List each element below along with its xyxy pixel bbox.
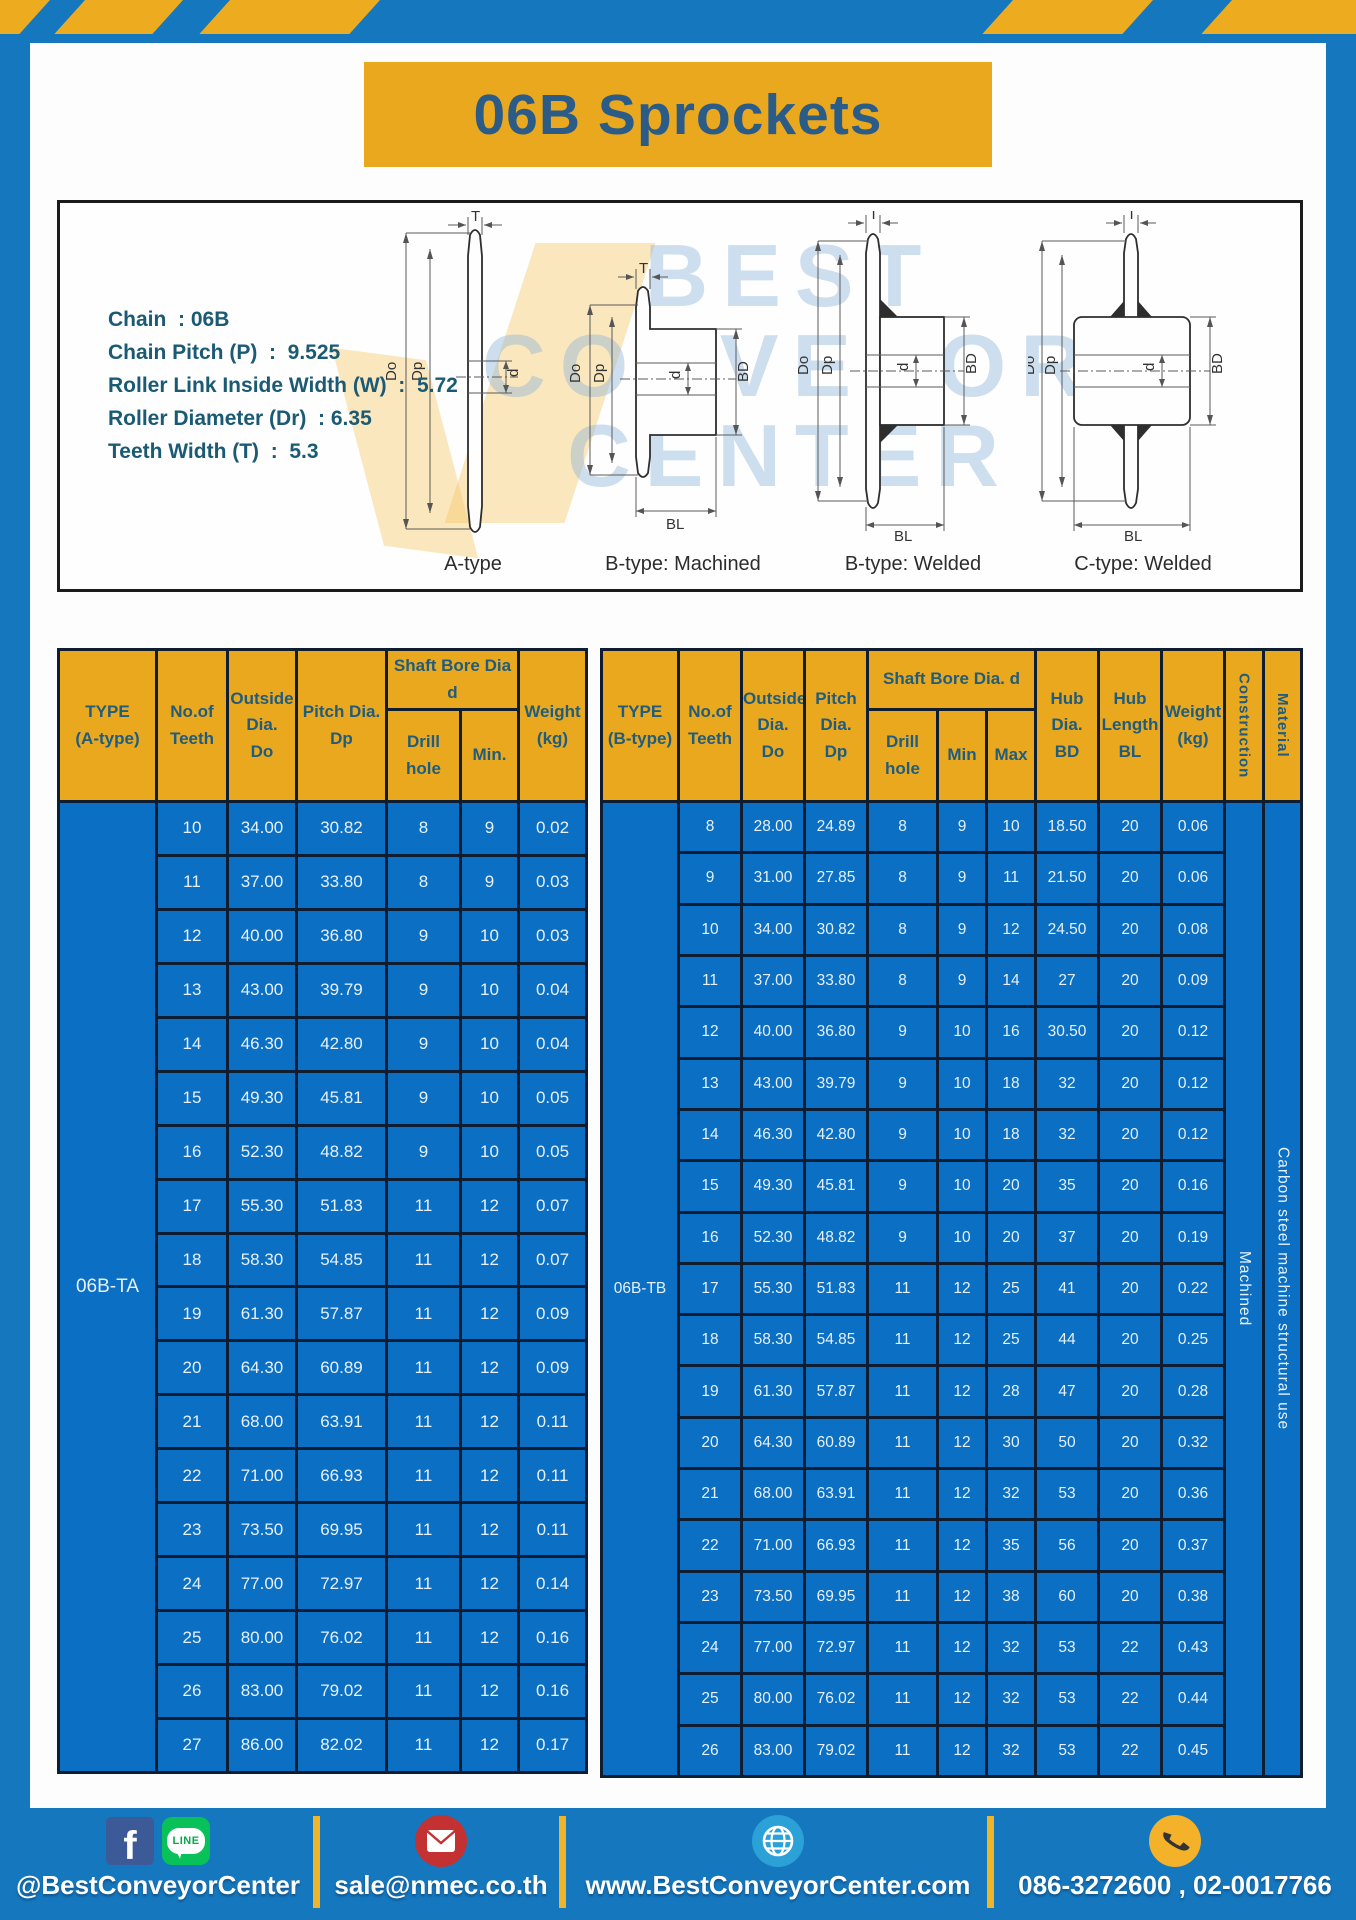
table-cell: 0.25	[1162, 1315, 1225, 1366]
svg-text:T: T	[471, 211, 480, 225]
table-cell: 53	[1036, 1725, 1099, 1776]
table-cell: 57.87	[805, 1366, 868, 1417]
table-cell: 0.16	[1162, 1161, 1225, 1212]
table-cell: 44	[1036, 1315, 1099, 1366]
table-row: 2064.3060.8911123050200.32	[602, 1417, 1302, 1468]
table-cell: 0.11	[519, 1503, 587, 1557]
table-cell: 12	[938, 1417, 987, 1468]
col-header-material: Material	[1264, 650, 1302, 802]
table-cell: 12	[461, 1233, 519, 1287]
table-cell: 64.30	[228, 1341, 297, 1395]
table-cell: 34.00	[742, 904, 805, 955]
table-cell: 0.06	[1162, 853, 1225, 904]
table-cell: 37.00	[742, 955, 805, 1006]
table-cell: 48.82	[297, 1125, 387, 1179]
table-cell: 0.09	[1162, 955, 1225, 1006]
table-cell: 25	[987, 1315, 1036, 1366]
svg-text:BD: BD	[735, 361, 752, 382]
table-cell: 20	[1099, 1571, 1162, 1622]
table-cell: 82.02	[297, 1718, 387, 1772]
phone-icon[interactable]	[1149, 1815, 1201, 1867]
spec-line: Roller Link Inside Width (W) : 5.72	[108, 369, 458, 402]
table-cell: 0.36	[1162, 1469, 1225, 1520]
col-header-weight: Weight (kg)	[519, 650, 587, 802]
table-cell: 19	[679, 1366, 742, 1417]
table-cell: 54.85	[805, 1315, 868, 1366]
table-cell: 55.30	[228, 1179, 297, 1233]
table-cell: 15	[679, 1161, 742, 1212]
svg-text:Do: Do	[568, 364, 584, 383]
table-cell: 10	[938, 1212, 987, 1263]
table-cell: 0.32	[1162, 1417, 1225, 1468]
table-cell: 14	[987, 955, 1036, 1006]
table-cell: 10	[461, 1017, 519, 1071]
table-b-container: TYPE (B-type) No.of Teeth Outside Dia. D…	[600, 648, 1300, 1778]
table-cell: 11	[387, 1718, 461, 1772]
table-cell: 30.82	[805, 904, 868, 955]
table-cell: 38	[987, 1571, 1036, 1622]
table-cell: 49.30	[742, 1161, 805, 1212]
table-cell: 0.12	[1162, 1058, 1225, 1109]
table-cell: 20	[1099, 1263, 1162, 1314]
table-cell: 22	[1099, 1674, 1162, 1725]
facebook-icon[interactable]: f	[106, 1817, 154, 1865]
svg-text:Dp: Dp	[591, 364, 608, 383]
table-row: 2373.5069.9511123860200.38	[602, 1571, 1302, 1622]
table-cell: 83.00	[228, 1665, 297, 1719]
phone-numbers[interactable]: 086-3272600 , 02-0017766	[1018, 1870, 1332, 1901]
table-cell: 0.43	[1162, 1623, 1225, 1674]
page-title: 06B Sprockets	[473, 82, 882, 148]
col-header-weight: Weight (kg)	[1162, 650, 1225, 802]
table-cell: 58.30	[742, 1315, 805, 1366]
table-cell: 8	[868, 802, 938, 853]
table-cell: 20	[1099, 1212, 1162, 1263]
table-cell: 14	[679, 1109, 742, 1160]
table-cell: 11	[868, 1366, 938, 1417]
table-cell: 10	[679, 904, 742, 955]
table-row: 2683.0079.0211123253220.45	[602, 1725, 1302, 1776]
table-cell: 26	[157, 1665, 228, 1719]
table-cell: 30.50	[1036, 1007, 1099, 1058]
table-cell: 17	[679, 1263, 742, 1314]
table-cell: 12	[461, 1611, 519, 1665]
top-decorative-band	[0, 0, 1356, 43]
table-cell: 68.00	[228, 1395, 297, 1449]
table-cell: 17	[157, 1179, 228, 1233]
table-cell: 61.30	[742, 1366, 805, 1417]
table-cell: 16	[157, 1125, 228, 1179]
table-cell: 21	[679, 1469, 742, 1520]
table-cell: 11	[679, 955, 742, 1006]
chain-specs: Chain : 06B Chain Pitch (P) : 9.525 Roll…	[108, 303, 458, 468]
table-cell: 39.79	[297, 963, 387, 1017]
table-cell: 20	[1099, 1520, 1162, 1571]
table-cell: 0.03	[519, 909, 587, 963]
table-cell: 0.07	[519, 1179, 587, 1233]
email-address[interactable]: sale@nmec.co.th	[334, 1870, 547, 1901]
svg-text:d: d	[895, 363, 912, 371]
table-cell: 12	[461, 1287, 519, 1341]
table-row: 2580.0076.0211123253220.44	[602, 1674, 1302, 1725]
table-cell: 11	[868, 1520, 938, 1571]
table-cell: 24	[157, 1557, 228, 1611]
diagram-b-type-welded: T Do Dp	[798, 211, 1028, 583]
table-cell: 20	[1099, 1315, 1162, 1366]
table-cell: 0.38	[1162, 1571, 1225, 1622]
table-cell: 0.05	[519, 1125, 587, 1179]
table-cell: 69.95	[297, 1503, 387, 1557]
type-label-cell: 06B-TB	[602, 802, 679, 1777]
table-row: 1549.3045.819102035200.16	[602, 1161, 1302, 1212]
col-header-hub-length: Hub Length BL	[1099, 650, 1162, 802]
table-cell: 27	[1036, 955, 1099, 1006]
table-cell: 20	[1099, 1007, 1162, 1058]
table-row: 2168.0063.9111123253200.36	[602, 1469, 1302, 1520]
footer-divider	[987, 1816, 994, 1908]
table-cell: 28.00	[742, 802, 805, 853]
table-cell: 32	[1036, 1058, 1099, 1109]
table-cell: 26	[679, 1725, 742, 1776]
table-cell: 10	[157, 802, 228, 856]
table-cell: 60.89	[297, 1341, 387, 1395]
table-cell: 11	[387, 1665, 461, 1719]
table-cell: 64.30	[742, 1417, 805, 1468]
table-cell: 19	[157, 1287, 228, 1341]
footer-divider	[559, 1816, 566, 1908]
globe-glyph	[760, 1823, 796, 1859]
table-cell: 27.85	[805, 853, 868, 904]
table-cell: 12	[461, 1503, 519, 1557]
social-handle[interactable]: @BestConveyorCenter	[16, 1870, 300, 1901]
table-cell: 51.83	[297, 1179, 387, 1233]
table-cell: 54.85	[297, 1233, 387, 1287]
table-cell: 12	[938, 1366, 987, 1417]
table-cell: 33.80	[805, 955, 868, 1006]
col-header-type: TYPE (A-type)	[59, 650, 157, 802]
table-cell: 10	[987, 802, 1036, 853]
table-cell: 9	[938, 955, 987, 1006]
table-cell: 83.00	[742, 1725, 805, 1776]
table-cell: 35	[987, 1520, 1036, 1571]
table-cell: 76.02	[805, 1674, 868, 1725]
table-cell: 0.11	[519, 1449, 587, 1503]
table-cell: 0.09	[519, 1287, 587, 1341]
table-cell: 0.03	[519, 855, 587, 909]
table-cell: 25	[679, 1674, 742, 1725]
table-cell: 45.81	[805, 1161, 868, 1212]
table-row: 2477.0072.9711123253220.43	[602, 1623, 1302, 1674]
table-cell: 10	[938, 1058, 987, 1109]
table-cell: 13	[157, 963, 228, 1017]
table-cell: 9	[387, 1071, 461, 1125]
table-cell: 9	[679, 853, 742, 904]
table-row: 06B-TA1034.0030.82890.02	[59, 802, 587, 856]
table-cell: 45.81	[297, 1071, 387, 1125]
table-cell: 23	[157, 1503, 228, 1557]
table-cell: 9	[938, 802, 987, 853]
table-cell: 52.30	[228, 1125, 297, 1179]
page-body: 06B Sprockets BEST CONVEYOR CENTER Chain…	[30, 43, 1326, 1808]
table-cell: 20	[1099, 853, 1162, 904]
table-cell: 10	[461, 1071, 519, 1125]
table-cell: 12	[938, 1623, 987, 1674]
table-cell: 21	[157, 1395, 228, 1449]
table-cell: 18	[987, 1058, 1036, 1109]
line-bubble-tail	[173, 1849, 182, 1858]
col-header-outside-dia: Outside Dia. Do	[742, 650, 805, 802]
table-cell: 56	[1036, 1520, 1099, 1571]
table-cell: 71.00	[228, 1449, 297, 1503]
table-cell: 31.00	[742, 853, 805, 904]
table-cell: 9	[938, 904, 987, 955]
table-cell: 9	[461, 855, 519, 909]
svg-text:Dp: Dp	[1042, 356, 1059, 375]
table-cell: 12	[938, 1725, 987, 1776]
table-cell: 0.08	[1162, 904, 1225, 955]
table-row: 1240.0036.809101630.50200.12	[602, 1007, 1302, 1058]
table-cell: 43.00	[742, 1058, 805, 1109]
table-cell: 12	[461, 1341, 519, 1395]
diagram-panel: BEST CONVEYOR CENTER Chain : 06B Chain P…	[57, 200, 1303, 592]
table-cell: 63.91	[297, 1395, 387, 1449]
table-cell: 20	[987, 1161, 1036, 1212]
table-cell: 20	[1099, 1366, 1162, 1417]
table-cell: 9	[387, 963, 461, 1017]
table-cell: 0.12	[1162, 1109, 1225, 1160]
table-cell: 22	[1099, 1725, 1162, 1776]
table-cell: 10	[938, 1007, 987, 1058]
table-cell: 58.30	[228, 1233, 297, 1287]
table-cell: 79.02	[297, 1665, 387, 1719]
table-cell: 86.00	[228, 1718, 297, 1772]
title-banner: 06B Sprockets	[364, 62, 992, 167]
table-cell: 69.95	[805, 1571, 868, 1622]
table-cell: 71.00	[742, 1520, 805, 1571]
table-cell: 0.05	[519, 1071, 587, 1125]
table-cell: 22	[157, 1449, 228, 1503]
table-cell: 60.89	[805, 1417, 868, 1468]
table-cell: 42.80	[805, 1109, 868, 1160]
table-cell: 11	[868, 1725, 938, 1776]
table-cell: 0.16	[519, 1665, 587, 1719]
table-cell: 36.80	[297, 909, 387, 963]
svg-text:BL: BL	[1124, 528, 1142, 545]
table-row: 06B-TB828.0024.89891018.50200.06Machined…	[602, 802, 1302, 853]
table-cell: 20	[1099, 1058, 1162, 1109]
table-cell: 20	[1099, 802, 1162, 853]
col-header-shaft-bore: Shaft Bore Dia d	[387, 650, 519, 710]
table-cell: 0.04	[519, 963, 587, 1017]
b-type-welded-drawing: T Do Dp	[798, 211, 1028, 551]
table-cell: 9	[387, 1017, 461, 1071]
table-cell: 0.02	[519, 802, 587, 856]
table-cell: 40.00	[742, 1007, 805, 1058]
table-cell: 46.30	[742, 1109, 805, 1160]
stripe-decoration	[199, 0, 380, 34]
table-cell: 0.09	[519, 1341, 587, 1395]
c-type-welded-drawing: T Do Dp	[1028, 211, 1258, 551]
table-cell: 11	[387, 1179, 461, 1233]
table-cell: 73.50	[228, 1503, 297, 1557]
table-cell: 11	[387, 1287, 461, 1341]
table-cell: 10	[461, 963, 519, 1017]
globe-icon[interactable]	[752, 1815, 804, 1867]
table-cell: 32	[987, 1674, 1036, 1725]
table-cell: 52.30	[742, 1212, 805, 1263]
table-cell: 53	[1036, 1623, 1099, 1674]
table-cell: 76.02	[297, 1611, 387, 1665]
svg-text:T: T	[639, 260, 648, 277]
table-cell: 61.30	[228, 1287, 297, 1341]
table-cell: 21.50	[1036, 853, 1099, 904]
table-cell: 20	[679, 1417, 742, 1468]
table-cell: 10	[461, 1125, 519, 1179]
table-cell: 8	[868, 904, 938, 955]
table-cell: 12	[157, 909, 228, 963]
table-cell: 60	[1036, 1571, 1099, 1622]
table-cell: 39.79	[805, 1058, 868, 1109]
table-cell: 72.97	[805, 1623, 868, 1674]
col-header-drill-hole: Drill hole	[868, 710, 938, 802]
footer-website-section[interactable]: www.BestConveyorCenter.com	[566, 1808, 990, 1920]
table-cell: 77.00	[742, 1623, 805, 1674]
table-cell: 32	[987, 1469, 1036, 1520]
svg-text:BD: BD	[963, 353, 980, 374]
table-cell: 79.02	[805, 1725, 868, 1776]
table-cell: 15	[157, 1071, 228, 1125]
stripe-decoration	[982, 0, 1153, 34]
material-value-cell: Carbon steel machine structural use	[1264, 802, 1302, 1777]
b-type-machined-drawing: T Do d Dp d	[568, 211, 798, 551]
svg-text:T: T	[869, 211, 878, 223]
svg-text:d: d	[505, 369, 522, 377]
handset-glyph	[1160, 1826, 1190, 1856]
email-icon[interactable]	[415, 1815, 467, 1867]
table-cell: 18	[679, 1315, 742, 1366]
table-cell: 28	[987, 1366, 1036, 1417]
footer-social-section[interactable]: f LINE @BestConveyorCenter	[0, 1808, 316, 1920]
col-header-pitch-dia: Pitch Dia. Dp	[297, 650, 387, 802]
table-cell: 0.44	[1162, 1674, 1225, 1725]
table-cell: 22	[1099, 1623, 1162, 1674]
col-header-min: Min.	[461, 710, 519, 802]
table-cell: 66.93	[297, 1449, 387, 1503]
website-url[interactable]: www.BestConveyorCenter.com	[586, 1870, 971, 1901]
table-cell: 63.91	[805, 1469, 868, 1520]
table-cell: 35	[1036, 1161, 1099, 1212]
spec-line: Chain Pitch (P) : 9.525	[108, 336, 458, 369]
table-cell: 12	[461, 1395, 519, 1449]
table-cell: 8	[868, 955, 938, 1006]
table-cell: 11	[868, 1674, 938, 1725]
table-cell: 34.00	[228, 802, 297, 856]
table-cell: 80.00	[742, 1674, 805, 1725]
table-cell: 27	[157, 1718, 228, 1772]
svg-text:Dp: Dp	[819, 356, 836, 375]
table-cell: 9	[868, 1109, 938, 1160]
footer-phone-section[interactable]: 086-3272600 , 02-0017766	[994, 1808, 1356, 1920]
table-cell: 9	[868, 1058, 938, 1109]
table-cell: 11	[387, 1503, 461, 1557]
table-cell: 50	[1036, 1417, 1099, 1468]
table-cell: 20	[987, 1212, 1036, 1263]
table-cell: 0.14	[519, 1557, 587, 1611]
col-header-hub-dia: Hub Dia. BD	[1036, 650, 1099, 802]
sprocket-table-a-type: TYPE (A-type) No.of Teeth Outside Dia. D…	[57, 648, 588, 1774]
table-row: 1343.0039.799101832200.12	[602, 1058, 1302, 1109]
table-cell: 11	[868, 1417, 938, 1468]
table-cell: 13	[679, 1058, 742, 1109]
footer-email-section[interactable]: sale@nmec.co.th	[320, 1808, 562, 1920]
table-cell: 80.00	[228, 1611, 297, 1665]
line-app-icon[interactable]: LINE	[162, 1817, 210, 1865]
table-cell: 9	[868, 1161, 938, 1212]
col-header-min: Min	[938, 710, 987, 802]
table-row: 1446.3042.809101832200.12	[602, 1109, 1302, 1160]
envelope-glyph	[426, 1829, 456, 1853]
table-cell: 20	[1099, 904, 1162, 955]
table-cell: 0.04	[519, 1017, 587, 1071]
table-cell: 53	[1036, 1674, 1099, 1725]
diagram-caption: B-type: Welded	[845, 553, 981, 576]
table-cell: 51.83	[805, 1263, 868, 1314]
table-cell: 22	[679, 1520, 742, 1571]
svg-text:BL: BL	[894, 528, 912, 545]
svg-text:Do: Do	[1028, 356, 1038, 375]
table-cell: 42.80	[297, 1017, 387, 1071]
table-cell: 0.11	[519, 1395, 587, 1449]
table-cell: 43.00	[228, 963, 297, 1017]
table-cell: 0.12	[1162, 1007, 1225, 1058]
table-cell: 30.82	[297, 802, 387, 856]
table-cell: 36.80	[805, 1007, 868, 1058]
sprocket-table-b-type: TYPE (B-type) No.of Teeth Outside Dia. D…	[600, 648, 1303, 1778]
table-cell: 37.00	[228, 855, 297, 909]
table-cell: 12	[679, 1007, 742, 1058]
table-cell: 0.19	[1162, 1212, 1225, 1263]
table-cell: 9	[868, 1007, 938, 1058]
table-cell: 20	[1099, 1109, 1162, 1160]
table-cell: 11	[387, 1557, 461, 1611]
table-cell: 0.17	[519, 1718, 587, 1772]
table-cell: 40.00	[228, 909, 297, 963]
table-cell: 11	[868, 1623, 938, 1674]
table-cell: 12	[987, 904, 1036, 955]
table-cell: 9	[868, 1212, 938, 1263]
table-cell: 10	[938, 1109, 987, 1160]
diagram-c-type-welded: T Do Dp	[1028, 211, 1258, 583]
table-cell: 12	[938, 1571, 987, 1622]
table-cell: 14	[157, 1017, 228, 1071]
table-cell: 11	[387, 1341, 461, 1395]
table-cell: 41	[1036, 1263, 1099, 1314]
table-cell: 12	[461, 1718, 519, 1772]
svg-text:BL: BL	[666, 516, 684, 533]
table-cell: 11	[157, 855, 228, 909]
table-cell: 23	[679, 1571, 742, 1622]
table-row: 931.0027.85891121.50200.06	[602, 853, 1302, 904]
table-cell: 25	[987, 1263, 1036, 1314]
table-row: 1755.3051.8311122541200.22	[602, 1263, 1302, 1314]
spec-line: Teeth Width (T) : 5.3	[108, 435, 458, 468]
table-cell: 0.07	[519, 1233, 587, 1287]
col-header-construction: Construction	[1225, 650, 1264, 802]
svg-text:BD: BD	[1209, 353, 1226, 374]
table-cell: 16	[987, 1007, 1036, 1058]
col-header-outside-dia: Outside Dia. Do	[228, 650, 297, 802]
table-cell: 18	[157, 1233, 228, 1287]
